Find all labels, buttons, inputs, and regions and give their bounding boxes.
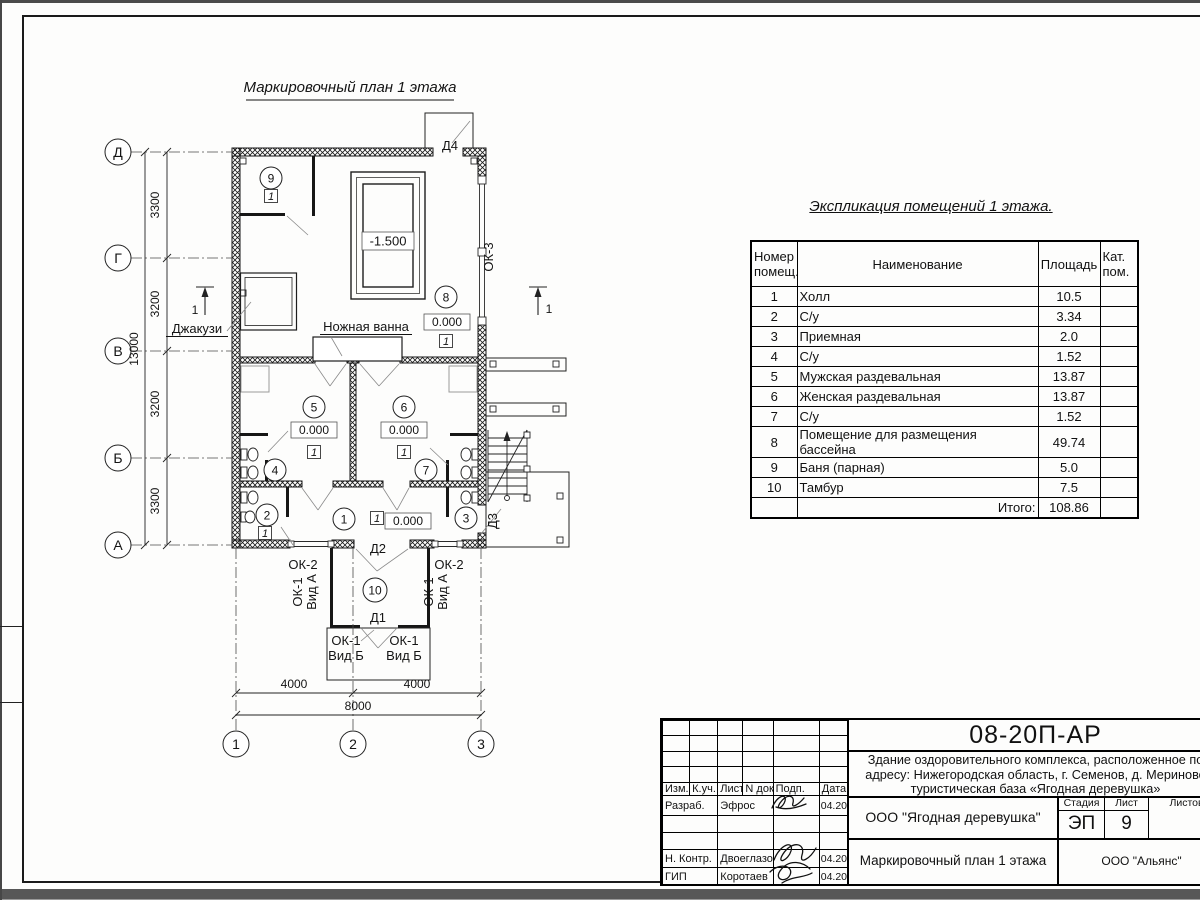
dim-label: 3300 — [148, 191, 162, 218]
room-area: 10.5 — [1038, 287, 1100, 307]
dim-label: 3200 — [148, 290, 162, 317]
type-marker-label: 1 — [311, 447, 317, 459]
section-marks — [196, 287, 547, 315]
room-area: 1.52 — [1038, 407, 1100, 427]
dim-label: 4000 — [404, 677, 431, 691]
table-row: 7С/у1.52 — [751, 407, 1138, 427]
signature-scribble — [770, 796, 816, 883]
room-cat — [1100, 407, 1138, 427]
type-marker-label: 1 — [401, 447, 407, 459]
room-area: 2.0 — [1038, 327, 1100, 347]
room-name: Приемная — [797, 327, 1038, 347]
room-num: 1 — [751, 287, 797, 307]
axis-label-1: 1 — [232, 736, 240, 752]
axis-label-g: Г — [114, 250, 122, 266]
room-cat — [1100, 458, 1138, 478]
room-area: 49.74 — [1038, 427, 1100, 458]
sheet-value: 9 — [1105, 810, 1149, 839]
project-line: Здание оздоровительного комплекса, распо… — [849, 753, 1200, 768]
table-row: 1Холл10.5 — [751, 287, 1138, 307]
plan-title: Маркировочный план 1 этажа — [244, 79, 457, 96]
sheet-title: Маркировочный план 1 этажа — [849, 840, 1057, 884]
room-number-8: 8 — [443, 291, 450, 305]
axis-label-b: Б — [113, 450, 122, 466]
door-label-d2: Д2 — [370, 541, 386, 556]
title-block: Изм. К.уч. Лист N док. Подп. Дата Разраб… — [660, 718, 1200, 886]
stage-sheet-grid: Стадия Лист Листов ЭП 9 — [1057, 797, 1200, 840]
dim-label-total: 8000 — [345, 699, 372, 713]
room-name: С/у — [797, 407, 1038, 427]
axis-lines — [131, 152, 481, 731]
room-area: 1.52 — [1038, 347, 1100, 367]
table-row: 10Тамбур7.5 — [751, 478, 1138, 498]
room-name: Женская раздевальная — [797, 387, 1038, 407]
window-label-ok1: ОК-1 — [421, 577, 436, 606]
room-name: С/у — [797, 307, 1038, 327]
elevation-mark: 0.000 — [389, 423, 419, 437]
table-row: 5Мужская раздевальная13.87 — [751, 367, 1138, 387]
document-number: 08-20П-АР — [849, 720, 1200, 752]
axis-label-v: В — [113, 343, 122, 359]
table-row: 3Приемная2.0 — [751, 327, 1138, 347]
staff-role: ГИП — [663, 868, 718, 885]
dim-label: 3200 — [148, 390, 162, 417]
footbath-label: Ножная ванна — [323, 319, 410, 334]
room-number-5: 5 — [311, 401, 318, 415]
window-label-ok3: ОК-3 — [481, 242, 496, 271]
room-area: 5.0 — [1038, 458, 1100, 478]
table-row: 9Баня (парная)5.0 — [751, 458, 1138, 478]
room-number-9: 9 — [268, 172, 275, 186]
stage-value: ЭП — [1059, 810, 1105, 839]
window-view-b: Вид Б — [386, 648, 422, 663]
col-header-category: Кат. пом. — [1100, 241, 1138, 287]
project-description: Здание оздоровительного комплекса, распо… — [849, 752, 1200, 798]
explication-title: Экспликация помещений 1 этажа. — [800, 198, 1062, 215]
contractor-organization: ООО "Альянс" — [1057, 840, 1200, 884]
col-header-number: Номер помещ. — [751, 241, 797, 287]
elevation-mark: 0.000 — [393, 514, 423, 528]
table-header-row: Номер помещ. Наименование Площадь Кат. п… — [751, 241, 1138, 287]
room-area: 3.34 — [1038, 307, 1100, 327]
room-num: 10 — [751, 478, 797, 498]
total-value: 108.86 — [1038, 498, 1100, 519]
jacuzzi-label: Джакузи — [172, 321, 222, 336]
room-number-3: 3 — [463, 512, 470, 526]
room-cat — [1100, 307, 1138, 327]
room-cat — [1100, 347, 1138, 367]
window-view-a: Вид А — [304, 574, 319, 610]
room-num: 7 — [751, 407, 797, 427]
type-marker-label: 1 — [262, 528, 268, 540]
total-label: Итого: — [797, 498, 1038, 519]
client-organization: ООО "Ягодная деревушка" — [849, 797, 1057, 840]
window-label-ok1: ОК-1 — [389, 633, 418, 648]
room-cat — [1100, 287, 1138, 307]
door-label-d3: Д3 — [485, 513, 500, 529]
project-line: туристическая база «Ягодная деревушка» — [849, 782, 1200, 797]
drawing-sheet: Маркировочный план 1 этажа — [0, 0, 1200, 900]
door-label-d4: Д4 — [442, 138, 458, 153]
room-cat — [1100, 367, 1138, 387]
table-row: 4С/у1.52 — [751, 347, 1138, 367]
signatures-overlay — [762, 788, 832, 888]
table-total-row: Итого: 108.86 — [751, 498, 1138, 519]
room-num: 6 — [751, 387, 797, 407]
room-area: 7.5 — [1038, 478, 1100, 498]
room-number-7: 7 — [423, 464, 430, 478]
staff-role: Н. Контр. — [663, 850, 718, 868]
sheet-header: Лист — [1105, 797, 1149, 810]
room-number-2: 2 — [264, 509, 271, 523]
room-name: Помещение для размещения бассейна — [797, 427, 1038, 458]
table-row: 2С/у3.34 — [751, 307, 1138, 327]
stage-header: Стадия — [1059, 797, 1105, 810]
room-number-10: 10 — [368, 584, 382, 598]
section-number: 1 — [546, 302, 553, 316]
col-header-area: Площадь — [1038, 241, 1100, 287]
dim-label-total: 13000 — [127, 332, 141, 366]
room-cat — [1100, 327, 1138, 347]
explication-table: Номер помещ. Наименование Площадь Кат. п… — [750, 240, 1139, 519]
empty-cell — [751, 498, 797, 519]
sheets-header: Листов — [1149, 797, 1200, 810]
dim-label: 4000 — [281, 677, 308, 691]
dim-label: 3300 — [148, 487, 162, 514]
room-num: 2 — [751, 307, 797, 327]
window-label-ok1: ОК-1 — [331, 633, 360, 648]
jacuzzi — [241, 273, 297, 330]
project-line: адресу: Нижегородская область, г. Семено… — [849, 768, 1200, 783]
axis-label-a: А — [113, 537, 123, 553]
room-cat — [1100, 478, 1138, 498]
axis-label-3: 3 — [477, 736, 485, 752]
staff-role: Разраб. — [663, 796, 718, 816]
room-name: Баня (парная) — [797, 458, 1038, 478]
stairs — [488, 430, 530, 502]
door-label-d1: Д1 — [370, 610, 386, 625]
window-view-b: Вид Б — [328, 648, 364, 663]
room-num: 3 — [751, 327, 797, 347]
window-view-a: Вид А — [435, 574, 450, 610]
type-marker-label: 1 — [268, 191, 274, 203]
elevation-mark: 0.000 — [432, 315, 462, 329]
axis-bubbles — [105, 139, 494, 757]
type-marker-label: 1 — [443, 336, 449, 348]
empty-cell — [1100, 498, 1138, 519]
room-cat — [1100, 427, 1138, 458]
window-label-ok2: ОК-2 — [288, 557, 317, 572]
room-name: Холл — [797, 287, 1038, 307]
section-number: 1 — [192, 303, 199, 317]
room-area: 13.87 — [1038, 387, 1100, 407]
room-name: С/у — [797, 347, 1038, 367]
window-label-ok2: ОК-2 — [434, 557, 463, 572]
col-izm: Изм. — [663, 783, 690, 796]
room-area: 13.87 — [1038, 367, 1100, 387]
elevation-mark: 0.000 — [299, 423, 329, 437]
room-num: 4 — [751, 347, 797, 367]
showers — [241, 366, 477, 392]
col-header-name: Наименование — [797, 241, 1038, 287]
room-number-4: 4 — [272, 464, 279, 478]
footbath — [313, 337, 402, 361]
room-number-1: 1 — [341, 513, 348, 527]
room-num: 5 — [751, 367, 797, 387]
room-name: Тамбур — [797, 478, 1038, 498]
col-kuch: К.уч. — [690, 783, 718, 796]
window-label-ok1: ОК-1 — [290, 577, 305, 606]
room-cat — [1100, 387, 1138, 407]
room-name: Мужская раздевальная — [797, 367, 1038, 387]
col-list: Лист — [718, 783, 743, 796]
axis-label-d: Д — [113, 144, 123, 160]
room-num: 8 — [751, 427, 797, 458]
pool-elevation-mark: -1.500 — [370, 234, 407, 249]
room-number-6: 6 — [401, 401, 408, 415]
axis-label-2: 2 — [349, 736, 357, 752]
table-row: 8Помещение для размещения бассейна49.74 — [751, 427, 1138, 458]
type-marker-label: 1 — [374, 513, 380, 525]
table-row: 6Женская раздевальная13.87 — [751, 387, 1138, 407]
room-num: 9 — [751, 458, 797, 478]
